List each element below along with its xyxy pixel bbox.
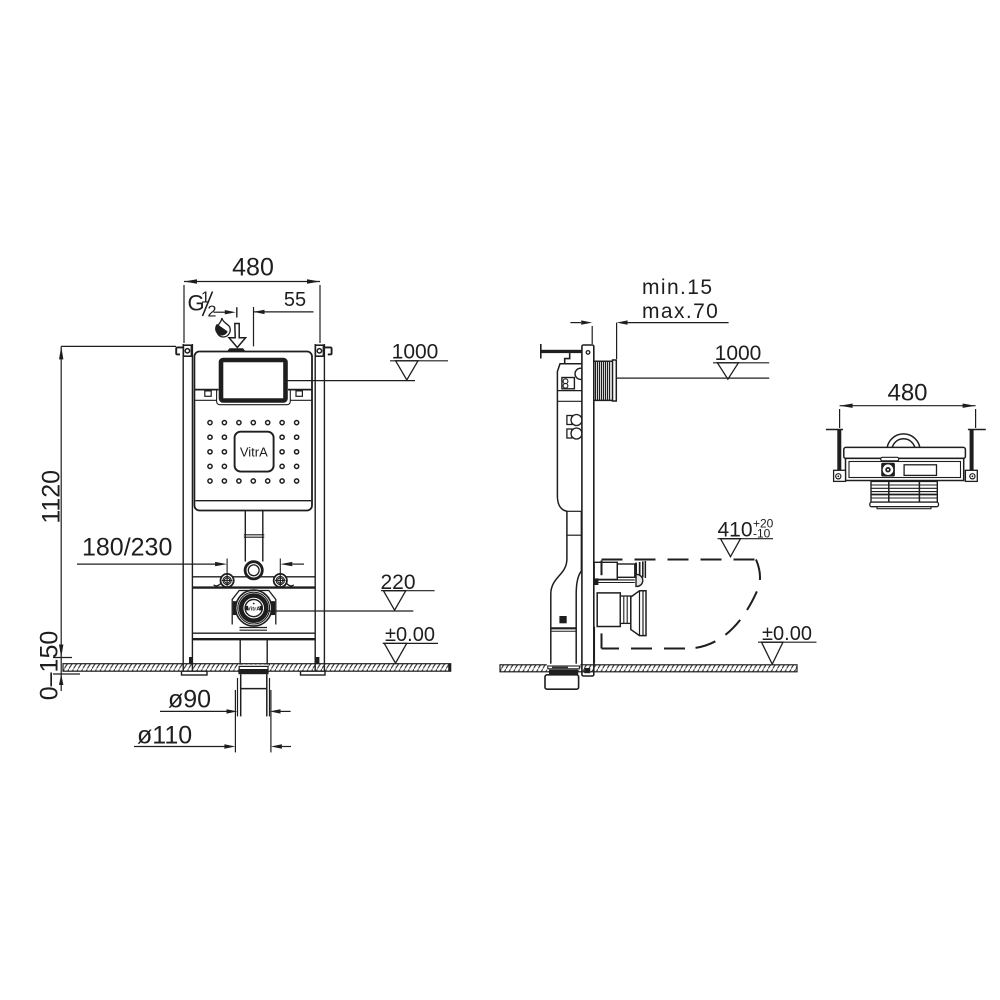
svg-text:ø110: ø110	[137, 722, 192, 750]
svg-text:1000: 1000	[715, 342, 762, 365]
svg-text:max.70: max.70	[642, 300, 719, 323]
svg-text:0–150: 0–150	[36, 631, 64, 701]
svg-text:VitrA: VitrA	[240, 445, 268, 460]
svg-text:min.15: min.15	[642, 276, 713, 299]
svg-text:180/230: 180/230	[82, 534, 172, 562]
svg-text:480: 480	[887, 380, 927, 407]
svg-text:±0.00: ±0.00	[385, 624, 435, 646]
svg-text:1000: 1000	[392, 341, 439, 364]
svg-text:VitrA: VitrA	[247, 607, 260, 613]
svg-text:55: 55	[284, 289, 306, 311]
svg-text:ø90: ø90	[168, 686, 211, 714]
svg-text:480: 480	[232, 254, 274, 282]
